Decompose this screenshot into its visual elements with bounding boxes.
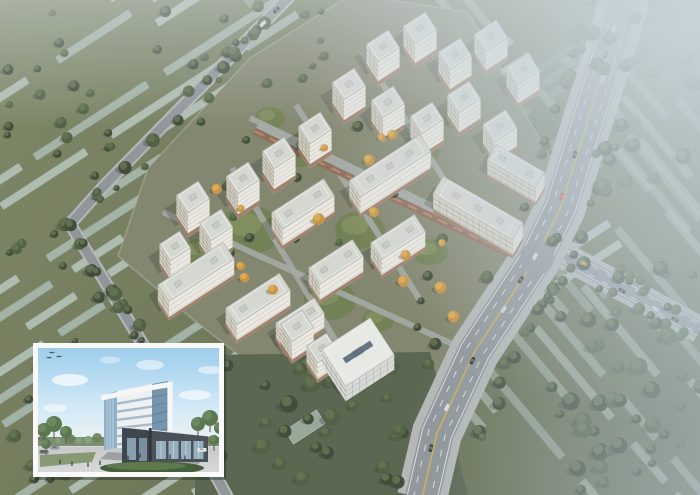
inset-car-window bbox=[53, 447, 57, 449]
treeline-bump bbox=[75, 437, 81, 443]
cloud bbox=[43, 404, 67, 412]
person-head bbox=[184, 455, 185, 456]
inset-tree-crown bbox=[47, 417, 57, 427]
aerial-rendering-canvas bbox=[0, 0, 700, 495]
inset-tree-crown bbox=[61, 427, 68, 434]
person bbox=[87, 464, 88, 467]
person-head bbox=[139, 453, 140, 454]
podium-corner-column bbox=[149, 428, 152, 462]
cloud bbox=[198, 366, 222, 374]
cloud bbox=[52, 374, 88, 386]
inset-photo bbox=[33, 343, 226, 480]
cloud bbox=[179, 390, 211, 400]
person-head bbox=[169, 454, 170, 455]
cloud bbox=[100, 357, 120, 364]
treeline-bump bbox=[55, 438, 60, 443]
person-head bbox=[71, 461, 72, 462]
inset-tree-crown bbox=[192, 418, 200, 426]
person bbox=[139, 455, 140, 458]
aerial-site-rendering bbox=[0, 0, 700, 495]
person-head bbox=[59, 459, 60, 460]
person bbox=[71, 463, 72, 466]
tower-left-glass bbox=[104, 391, 117, 450]
treeline-bump bbox=[92, 433, 101, 442]
hedge-highlight bbox=[106, 462, 186, 470]
person bbox=[127, 457, 128, 460]
person bbox=[59, 461, 60, 464]
person bbox=[99, 462, 100, 465]
person bbox=[169, 456, 170, 459]
inset-tree-crown bbox=[203, 411, 213, 421]
person-head bbox=[99, 460, 100, 461]
person-head bbox=[87, 462, 88, 463]
inset-image bbox=[37, 348, 226, 475]
person-head bbox=[127, 455, 128, 456]
inset-tree-crown bbox=[210, 436, 216, 442]
cloud bbox=[136, 360, 164, 370]
inset-tree-crown bbox=[38, 424, 46, 432]
inset-car-window bbox=[200, 449, 204, 451]
treeline-bump bbox=[84, 436, 92, 444]
inset-tree-crown bbox=[42, 440, 48, 446]
inset-car-window bbox=[42, 451, 46, 453]
person bbox=[184, 457, 185, 460]
